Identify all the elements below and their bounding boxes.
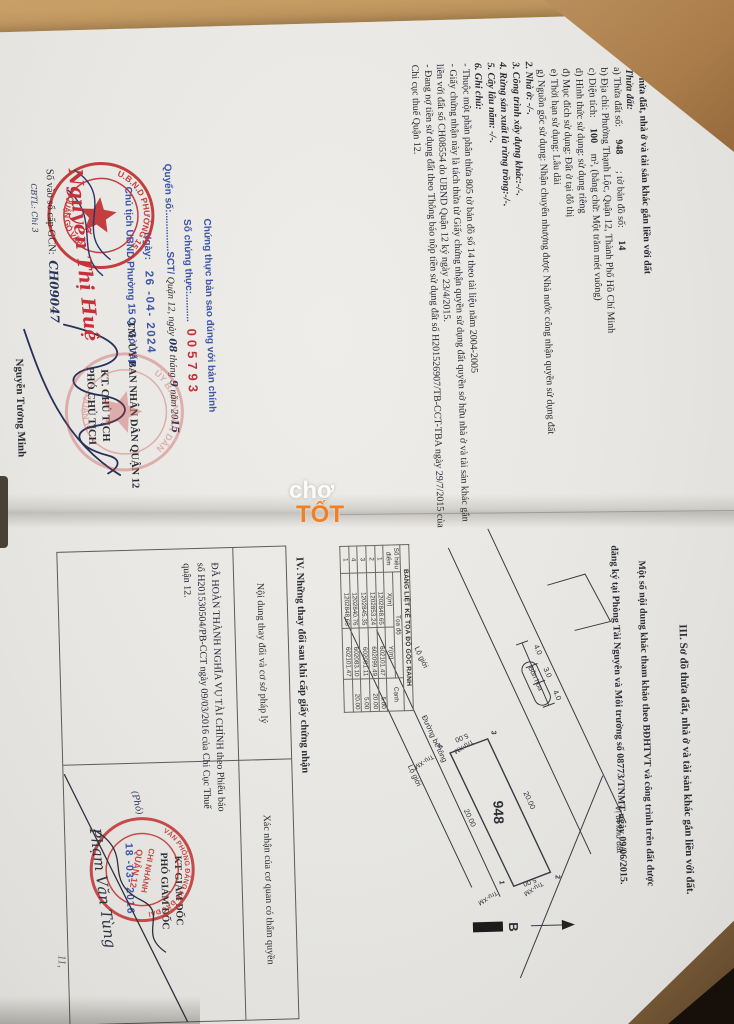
dim-4-0-b: 4.0 <box>551 689 563 702</box>
area-value: 100 <box>587 120 599 151</box>
certify-number-stamp: 005793 <box>184 328 201 396</box>
watermark-cho: chợ <box>289 477 334 504</box>
north-label: B <box>506 922 521 932</box>
dim-3-0: 3.0 <box>541 666 553 679</box>
svg-text:QUẬN 12: QUẬN 12 <box>80 393 95 433</box>
cadastral-sketch: B 4.0 3.0 4.0 Bồn hoa Lộ giới Đường bê t… <box>278 522 692 1024</box>
location-label: Vị trí khu đất <box>614 805 625 854</box>
changes-col-2-header: Xác nhận của cơ quan có thẩm quyền <box>239 759 298 1019</box>
coordinate-table: BẢNG LIỆT KÊ TỌA ĐỘ GÓC RANH Số hiệu điể… <box>339 544 413 713</box>
signature-scribble-registry <box>54 767 211 1024</box>
section-2-block: II. Thửa đất, nhà ở và tài sản khác gắn … <box>408 58 660 532</box>
post-1-label: Trụ-XM <box>477 889 499 906</box>
bottom-edge-shadow <box>0 996 200 1024</box>
registry-book-number: CH09047 <box>46 260 62 323</box>
certify-line-1: Chứng thực bản sao đúng với bản chính <box>201 218 217 412</box>
side-top-20: 20.00 <box>521 790 537 811</box>
svg-text:4: 4 <box>436 744 443 748</box>
chotot-watermark: chợ TỐT <box>289 479 344 527</box>
lo-gioi-label-1: Lộ giới <box>413 645 431 670</box>
round-stamp-quan-12: ỦY BAN NHÂN DÂN QUẬN 12 <box>61 348 188 475</box>
parcel-number-value: 948 <box>613 129 625 168</box>
changes-col-1-header: Nội dung thay đổi và cơ sở pháp lý <box>233 546 291 759</box>
cbtl-note: CBTL: Chi 3 <box>29 183 39 233</box>
side-bottom-20: 20.00 <box>462 807 478 828</box>
dark-edge-nick-left <box>0 476 8 548</box>
pencil-page-mark: 11, <box>56 955 68 968</box>
svg-text:1: 1 <box>498 880 505 884</box>
map-sheet-value: 14 <box>615 230 627 250</box>
post-4-label: Trụ-XM <box>413 753 435 770</box>
svg-text:2: 2 <box>554 875 561 879</box>
parcel-number-on-sketch: 948 <box>490 800 507 824</box>
watermark-tot: TỐT <box>296 501 344 528</box>
svg-text:3: 3 <box>489 731 496 735</box>
photo-of-land-certificate: II. Thửa đất, nhà ở và tài sản khác gắn … <box>0 0 734 1024</box>
